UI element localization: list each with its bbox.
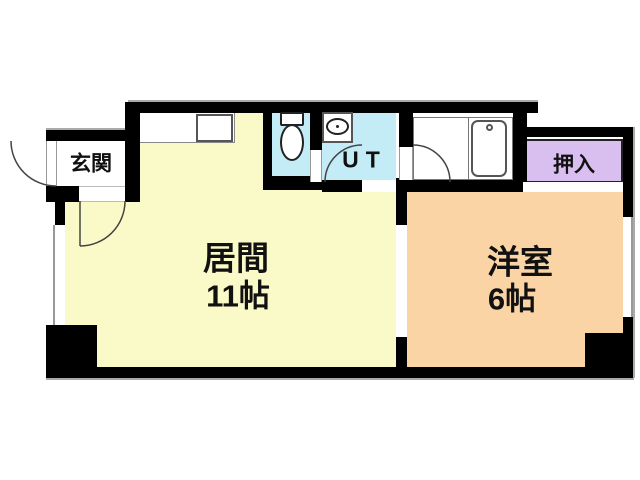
living-room-label: 居間: [203, 242, 269, 275]
genkan-label: 玄関: [70, 154, 112, 175]
oshiire-label: 押入: [553, 155, 595, 176]
western-room-label: 洋室: [487, 246, 553, 279]
ut-label: UT: [335, 149, 387, 172]
bath-door-arc: [413, 145, 450, 182]
front-door-arc: [11, 141, 56, 186]
living-room-size-label: 11帖: [206, 281, 270, 312]
door-arcs-layer: [0, 0, 640, 480]
western-room-size-label: 6帖: [488, 284, 536, 315]
floor-plan: 玄関 居間 11帖 UT 洋室 6帖 押入: [0, 0, 640, 480]
entrance-door-arc: [80, 201, 125, 246]
